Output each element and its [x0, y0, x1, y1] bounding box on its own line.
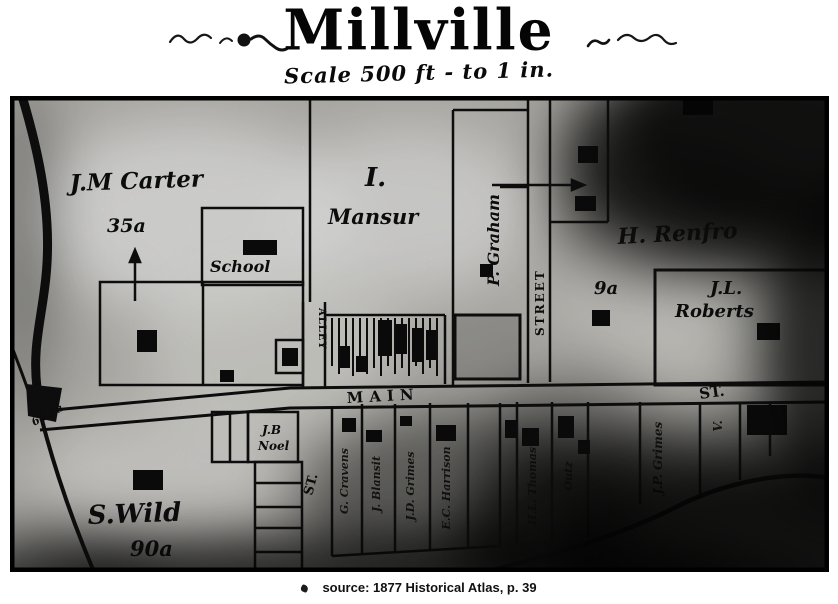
scanned-atlas-page: Millville Scale 500 ft - to 1 in.: [0, 0, 838, 604]
lot-label: E.C. Harrison: [440, 446, 453, 530]
parcel-label-mansur-initial: I.: [364, 163, 386, 193]
lot-label: V.: [711, 420, 725, 431]
parcel-label-noel-line2: Noel: [257, 439, 290, 453]
map-title: Millville: [283, 0, 554, 61]
parcel-label-noel-line1: J.B: [260, 423, 281, 437]
street-label-main-st: ST.: [698, 382, 726, 403]
parcel-label-carter: J.M Carter: [65, 165, 205, 197]
flourish-left-icon: [168, 26, 296, 56]
street-label-cross-street: STREET: [533, 269, 547, 336]
lot-label: J.D. Grimes: [404, 451, 417, 522]
plat-map: J.M Carter 35a School I. Mansur P. Graha…: [10, 96, 829, 572]
parcel-label-roberts-line2: Roberts: [674, 301, 754, 322]
street-label-alley: ALLEY: [316, 307, 327, 350]
parcel-acreage-carter: 35a: [107, 215, 146, 237]
caption-text: source: 1877 Historical Atlas, p. 39: [322, 580, 536, 595]
parcel-label-mansur: Mansur: [327, 204, 420, 229]
parcel-label-graham: P. Graham: [484, 194, 503, 287]
street-label-main: MAIN: [346, 385, 420, 407]
map-header: Millville Scale 500 ft - to 1 in.: [0, 0, 838, 94]
lot-label: H.L. Thomas: [526, 447, 539, 526]
caption-marker-icon: [300, 584, 309, 593]
parcel-label-roberts-line1: J.L.: [707, 278, 742, 299]
plat-map-drawing: J.M Carter 35a School I. Mansur P. Graha…: [10, 96, 829, 572]
flourish-right-icon: [584, 26, 680, 56]
source-caption: source: 1877 Historical Atlas, p. 39: [0, 580, 838, 595]
lot-label: Outz: [562, 461, 575, 491]
lot-label: G. Cravens: [338, 448, 351, 514]
parcel-label-school: School: [210, 257, 270, 276]
parcel-acreage-renfro: 9a: [594, 278, 618, 299]
lot-label: J. Blansit: [370, 456, 383, 514]
parcel-label-wild: S.Wild: [87, 498, 182, 531]
